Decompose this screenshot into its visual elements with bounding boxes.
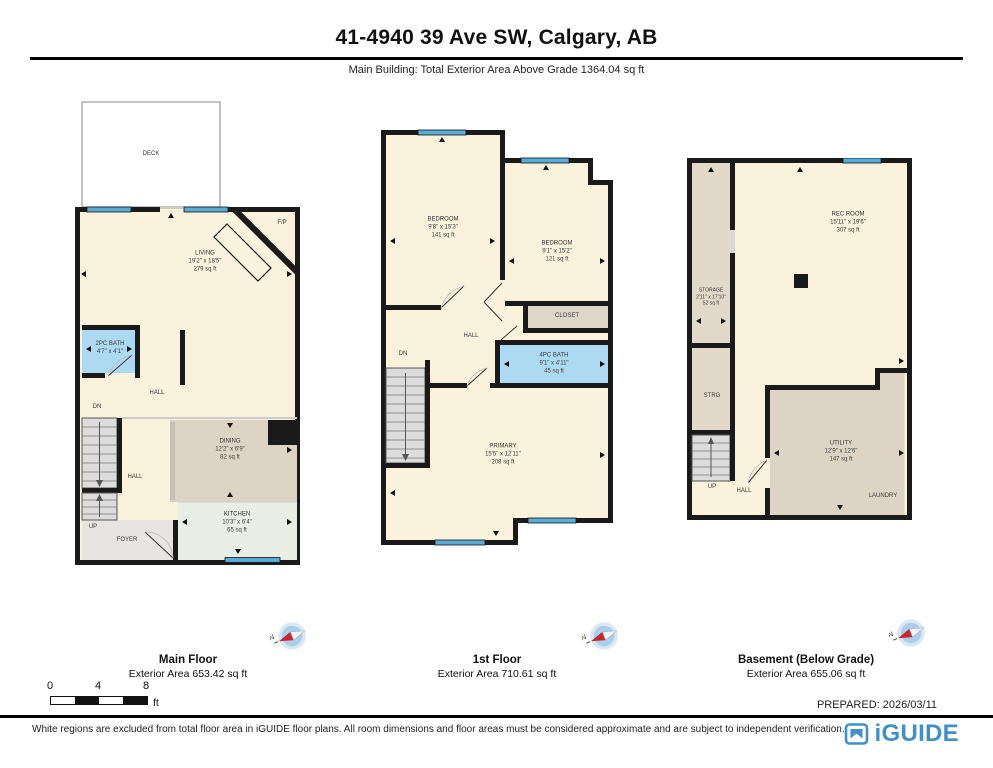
- primary-wall: [425, 383, 467, 388]
- stair-wall: [425, 360, 430, 463]
- dimension-arrow: [287, 447, 292, 453]
- scale-bar-segment: [123, 697, 147, 704]
- room-label-laundry: LAUNDRY: [869, 493, 898, 501]
- room-label-dining: DINING 12'2" x 6'9" 82 sq ft: [215, 438, 245, 461]
- bath-wall: [82, 325, 140, 330]
- floorplan-main-svg: [75, 100, 305, 570]
- storage-wall: [730, 348, 735, 435]
- room-label-kitchen: KITCHEN 10'3" x 6'4" 65 sq ft: [222, 511, 252, 534]
- dimension-arrow: [837, 505, 843, 510]
- window: [418, 130, 466, 135]
- dimension-arrow: [439, 137, 445, 142]
- bath-wall: [495, 340, 608, 345]
- floorplan-first-svg: [381, 128, 613, 558]
- scale-tick-8: 8: [143, 680, 149, 692]
- dimension-arrow: [493, 531, 499, 536]
- window: [843, 158, 881, 163]
- room-label-bedroom: BEDROOM 9'8" x 15'3" 141 sq ft: [427, 216, 458, 239]
- stair-wall: [386, 463, 430, 468]
- storage-wall: [730, 253, 735, 343]
- compass-north-label: N: [582, 634, 588, 642]
- stair-wall: [730, 430, 735, 481]
- first-floor-outline: [384, 133, 611, 543]
- stairs-label-dn: DN: [399, 351, 408, 359]
- prepared-date: PREPARED: 2026/03/11: [817, 699, 937, 711]
- room-label-hall: HALL: [149, 390, 164, 398]
- dimension-arrow: [774, 450, 779, 456]
- dimension-arrow: [227, 492, 233, 497]
- storage-door-opening: [730, 230, 735, 253]
- window: [521, 158, 569, 163]
- stairs-down: [386, 368, 425, 463]
- room-label-primary: PRIMARY 15'5" x 12'11" 208 sq ft: [485, 443, 521, 466]
- dimension-arrow: [168, 213, 174, 218]
- dimension-arrow: [235, 549, 241, 554]
- room-label-utility: UTILITY 12'9" x 12'6" 147 sq ft: [825, 440, 858, 463]
- compass-first: N: [582, 614, 626, 658]
- interior-wall: [505, 301, 523, 306]
- floorplan-page: 41-4940 39 Ave SW, Calgary, AB Main Buil…: [0, 0, 993, 768]
- storage-divider-wall: [692, 343, 735, 348]
- window: [435, 540, 485, 545]
- dimension-arrow: [721, 318, 726, 324]
- interior-wall: [180, 330, 185, 385]
- iguide-logo-text: iGUIDE: [875, 720, 959, 748]
- closet-wall: [523, 306, 528, 328]
- scale-tick-4: 4: [95, 680, 101, 692]
- bath-wall: [135, 325, 140, 378]
- interior-wall: [173, 520, 178, 560]
- dimension-arrow: [182, 519, 187, 525]
- room-label-hall: HALL: [736, 488, 751, 496]
- utility-wall: [765, 385, 880, 390]
- compass-north-tick: [893, 639, 897, 640]
- dimension-arrow: [227, 423, 233, 428]
- scale-tick-0: 0: [47, 680, 53, 692]
- floorplan-basement: STORAGE 2'11" x 17'10" 52 sq ft REC ROOM…: [687, 158, 912, 520]
- room-label-storage: STORAGE 2'11" x 17'10" 52 sq ft: [696, 287, 726, 307]
- caption-first-floor: 1st Floor Exterior Area 710.61 sq ft: [377, 654, 617, 680]
- page-subtitle: Main Building: Total Exterior Area Above…: [0, 64, 993, 76]
- compass-north-label: N: [889, 631, 895, 639]
- stairs-down: [82, 418, 117, 488]
- stairs-up: [692, 435, 730, 481]
- scale-unit: ft: [153, 697, 159, 709]
- disclaimer-text: White regions are excluded from total fl…: [32, 724, 845, 735]
- room-label-4pc-bath: 4PC BATH 9'1" x 4'11" 45 sq ft: [539, 352, 568, 375]
- compass-basement: N: [889, 611, 933, 655]
- floorplan-first: BEDROOM 9'8" x 15'3" 141 sq ft BEDROOM 9…: [381, 128, 613, 558]
- dimension-arrow: [899, 450, 904, 456]
- bath-wall: [495, 383, 608, 388]
- room-label-foyer: FOYER: [117, 537, 138, 545]
- dimension-arrow: [543, 165, 549, 170]
- compass-north-label: N: [270, 634, 276, 642]
- stair-wall: [692, 430, 735, 435]
- caption-main-floor: Main Floor Exterior Area 653.42 sq ft: [68, 654, 308, 680]
- dimension-arrow: [86, 346, 91, 352]
- stairs-label-up: UP: [89, 524, 97, 532]
- interior-wall: [386, 305, 441, 310]
- stairs-label-up: UP: [708, 484, 716, 492]
- compass-north-tick: [274, 642, 278, 643]
- floorplan-main: DECK LIVING 19'2" x 18'5" 279 sq ft F/P …: [75, 100, 305, 570]
- closet-wall: [523, 328, 608, 333]
- utility-wall: [765, 390, 770, 458]
- dimension-arrow: [600, 361, 605, 367]
- window: [184, 207, 228, 212]
- scale-bar: [50, 696, 148, 705]
- header-divider: [30, 57, 963, 60]
- dimension-arrow: [696, 318, 701, 324]
- page-title: 41-4940 39 Ave SW, Calgary, AB: [0, 26, 993, 50]
- window: [528, 518, 576, 523]
- dimension-arrow: [490, 238, 495, 244]
- dimension-arrow: [287, 271, 292, 277]
- room-label-bedroom: BEDROOM 9'1" x 15'2" 121 sq ft: [541, 240, 572, 263]
- bath-wall: [82, 373, 105, 378]
- stair-wall: [82, 488, 122, 493]
- iguide-logo: iGUIDE: [844, 720, 959, 748]
- room-label-fireplace: F/P: [277, 220, 286, 228]
- footer-divider: [0, 715, 993, 718]
- stairs-up: [82, 493, 117, 520]
- floorplan-basement-svg: [687, 158, 912, 520]
- floor-transition: [122, 417, 297, 419]
- stairs-label-dn: DN: [93, 404, 102, 412]
- room-label-closet: CLOSET: [555, 313, 579, 321]
- caption-basement: Basement (Below Grade) Exterior Area 655…: [686, 654, 926, 680]
- dimension-arrow: [287, 519, 292, 525]
- wall-block: [268, 420, 297, 445]
- iguide-logo-icon: [844, 722, 870, 746]
- room-label-2pc-bath: 2PC BATH 4'7" x 4'1": [96, 341, 125, 357]
- dimension-arrow: [504, 361, 509, 367]
- support-post: [794, 274, 808, 288]
- dimension-arrow: [708, 167, 714, 172]
- room-label-living: LIVING 19'2" x 18'5" 279 sq ft: [189, 250, 222, 273]
- window: [87, 207, 131, 212]
- dimension-arrow: [127, 346, 132, 352]
- dimension-arrow: [390, 490, 395, 496]
- scale-bar-segment: [75, 697, 99, 704]
- dimension-arrow: [81, 271, 86, 277]
- compass-main: N: [270, 614, 314, 658]
- primary-wall: [490, 383, 500, 388]
- closet-wall: [523, 301, 608, 306]
- room-label-deck: DECK: [143, 151, 160, 159]
- room-label-strg: STRG: [704, 393, 721, 401]
- compass-north-tick: [586, 642, 590, 643]
- dimension-arrow: [390, 238, 395, 244]
- bedroom-divider-wall: [500, 135, 505, 280]
- utility-wall: [765, 488, 770, 515]
- dimension-arrow: [600, 258, 605, 264]
- dimension-arrow: [899, 358, 904, 364]
- dining-counter: [170, 422, 175, 500]
- storage-wall: [730, 163, 735, 230]
- dimension-arrow: [797, 167, 803, 172]
- dimension-arrow: [509, 258, 514, 264]
- utility-wall: [875, 368, 910, 373]
- dimension-arrow: [600, 452, 605, 458]
- room-label-rec-room: REC ROOM 15'11" x 19'6" 307 sq ft: [830, 211, 866, 234]
- bath-wall: [495, 345, 500, 388]
- room-label-hall: HALL: [127, 474, 142, 482]
- room-label-hall: HALL: [463, 333, 478, 341]
- stair-wall: [117, 418, 122, 488]
- window: [225, 558, 280, 563]
